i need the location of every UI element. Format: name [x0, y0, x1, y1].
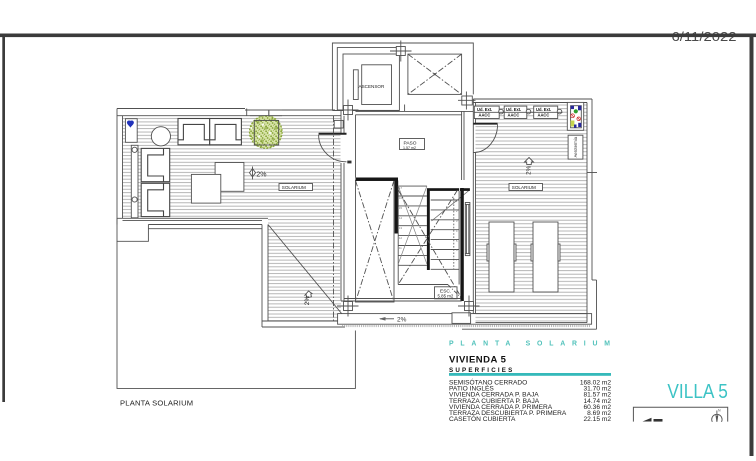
- svg-text:SOLARIUM: SOLARIUM: [282, 185, 306, 190]
- svg-text:SOLARIUM: SOLARIUM: [512, 185, 536, 190]
- svg-text:5.85 m2: 5.85 m2: [438, 294, 454, 299]
- svg-text:CASETÓN CUBIERTA: CASETÓN CUBIERTA: [449, 414, 516, 423]
- svg-text:1.57 m2: 1.57 m2: [403, 146, 416, 150]
- svg-text:Aerotermia: Aerotermia: [573, 136, 578, 157]
- svg-text:VIVIENDA 5: VIVIENDA 5: [449, 355, 507, 366]
- svg-text:Ud. Ext.: Ud. Ext.: [506, 107, 521, 112]
- svg-text:2%: 2%: [256, 171, 266, 178]
- svg-text:VILLA 5: VILLA 5: [667, 380, 728, 403]
- svg-text:ASCENSOR: ASCENSOR: [359, 84, 385, 89]
- svg-text:PLANTA SOLARIUM: PLANTA SOLARIUM: [120, 399, 193, 408]
- svg-text:2%: 2%: [304, 296, 311, 306]
- svg-text:2%: 2%: [526, 165, 533, 175]
- svg-text:AACC: AACC: [508, 112, 520, 117]
- svg-text:Ud. Ext.: Ud. Ext.: [477, 107, 492, 112]
- svg-text:SUPERFICIES: SUPERFICIES: [449, 367, 514, 374]
- svg-text:AACC: AACC: [538, 112, 550, 117]
- svg-text:AACC: AACC: [479, 112, 491, 117]
- svg-text:2%: 2%: [397, 317, 407, 324]
- svg-text:Ud. Ext.: Ud. Ext.: [536, 107, 551, 112]
